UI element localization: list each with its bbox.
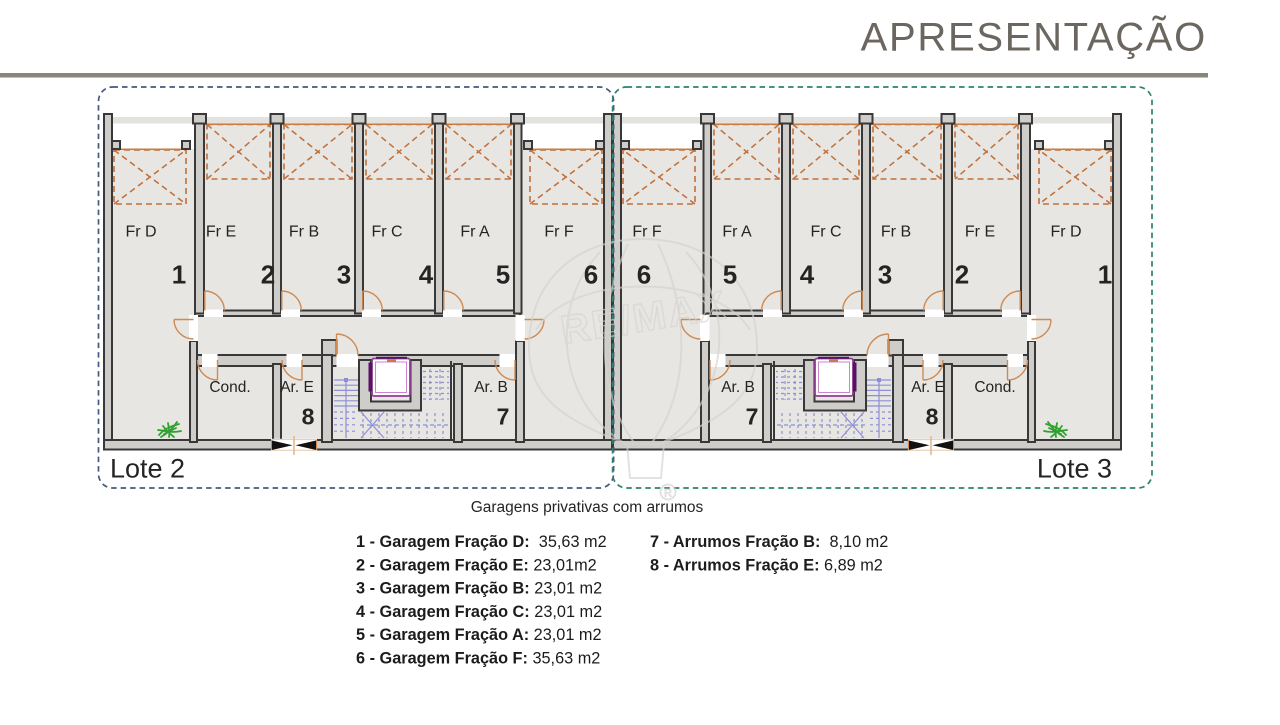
svg-text:3 - Garagem Fração B: 23,01 m2: 3 - Garagem Fração B: 23,01 m2 xyxy=(356,580,602,598)
svg-text:Garagens privativas com arrumo: Garagens privativas com arrumos xyxy=(471,499,704,516)
svg-text:Fr B: Fr B xyxy=(289,224,319,241)
svg-text:Cond.: Cond. xyxy=(209,379,250,396)
svg-text:4: 4 xyxy=(419,260,434,290)
svg-text:6 - Garagem Fração F: 35,63 m2: 6 - Garagem Fração F: 35,63 m2 xyxy=(356,650,600,668)
svg-text:Lote 3: Lote 3 xyxy=(1037,454,1112,484)
svg-text:7: 7 xyxy=(497,404,510,430)
svg-text:Fr B: Fr B xyxy=(881,224,911,241)
svg-text:1: 1 xyxy=(172,260,186,290)
svg-text:8 - Arrumos Fração E: 6,89 m2: 8 - Arrumos Fração E: 6,89 m2 xyxy=(650,556,883,574)
svg-text:2: 2 xyxy=(955,260,969,290)
svg-text:3: 3 xyxy=(878,260,892,290)
svg-text:Fr F: Fr F xyxy=(544,224,574,241)
svg-text:8: 8 xyxy=(926,404,939,430)
svg-text:1 - Garagem Fração D: 35,63 m: 1 - Garagem Fração D: 35,63 m2 xyxy=(356,533,607,551)
svg-text:Ar. E: Ar. E xyxy=(280,379,314,396)
svg-text:7 - Arrumos Fração B: 8,10 m2: 7 - Arrumos Fração B: 8,10 m2 xyxy=(650,533,888,551)
svg-text:Fr C: Fr C xyxy=(810,224,841,241)
svg-text:R: R xyxy=(664,488,672,500)
svg-text:Fr D: Fr D xyxy=(125,224,156,241)
svg-text:7: 7 xyxy=(746,404,759,430)
svg-text:5: 5 xyxy=(496,260,510,290)
svg-text:2: 2 xyxy=(261,260,275,290)
svg-text:4 - Garagem Fração C: 23,01 m2: 4 - Garagem Fração C: 23,01 m2 xyxy=(356,603,602,621)
svg-text:Ar. E: Ar. E xyxy=(911,379,945,396)
svg-text:6: 6 xyxy=(584,260,598,290)
svg-text:5: 5 xyxy=(723,260,737,290)
svg-text:Ar. B: Ar. B xyxy=(721,379,755,396)
svg-text:Fr A: Fr A xyxy=(460,224,490,241)
svg-text:Fr C: Fr C xyxy=(371,224,402,241)
svg-text:APRESENTAÇÃO: APRESENTAÇÃO xyxy=(861,15,1207,60)
svg-text:Ar. B: Ar. B xyxy=(474,379,508,396)
svg-text:8: 8 xyxy=(302,404,315,430)
svg-text:Cond.: Cond. xyxy=(974,379,1015,396)
svg-text:Fr F: Fr F xyxy=(632,224,662,241)
svg-text:5 - Garagem Fração A: 23,01 m2: 5 - Garagem Fração A: 23,01 m2 xyxy=(356,626,602,644)
svg-text:6: 6 xyxy=(637,260,651,290)
svg-text:3: 3 xyxy=(337,260,351,290)
svg-text:Lote 2: Lote 2 xyxy=(110,454,185,484)
svg-text:2 - Garagem Fração E: 23,01m2: 2 - Garagem Fração E: 23,01m2 xyxy=(356,556,597,574)
svg-text:Fr D: Fr D xyxy=(1050,224,1081,241)
svg-text:Fr E: Fr E xyxy=(965,224,995,241)
svg-text:4: 4 xyxy=(800,260,815,290)
svg-text:Fr A: Fr A xyxy=(722,224,752,241)
svg-text:Fr E: Fr E xyxy=(206,224,236,241)
svg-text:1: 1 xyxy=(1098,260,1112,290)
